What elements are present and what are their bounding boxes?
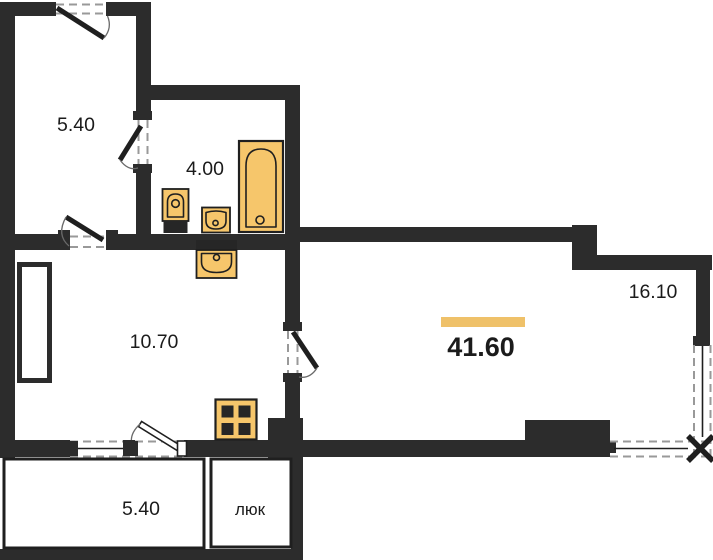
- door-jamb: [106, 230, 118, 250]
- wall-segment: [597, 255, 712, 270]
- wall-segment: [0, 2, 15, 458]
- door-closet-entry: [56, 5, 109, 39]
- door-kitchen-to-living: [288, 331, 317, 377]
- hatch-label: люк: [235, 500, 266, 519]
- cabinet: [20, 265, 50, 381]
- wall-segment: [0, 2, 56, 16]
- window-jamb: [693, 336, 710, 346]
- room-label-balcony: 5.40: [122, 498, 160, 520]
- wall-segment: [696, 270, 710, 338]
- wall-segment: [150, 85, 300, 100]
- door-bathroom: [120, 120, 148, 169]
- floor-plan-canvas: 5.40 4.00 10.70 41.60 16.10 5.40 люк: [0, 0, 713, 560]
- wall-segment: [525, 420, 610, 457]
- kitchen-sink-icon: [196, 240, 237, 278]
- door-jamb: [283, 322, 302, 331]
- wall-segment: [136, 2, 151, 111]
- wall-segment: [285, 227, 572, 242]
- room-label-living: 16.10: [629, 281, 678, 303]
- wall-segment: [291, 457, 303, 551]
- wall-segment: [285, 100, 300, 322]
- door-jamb: [133, 111, 152, 120]
- floor-plan: 5.40 4.00 10.70 41.60 16.10 5.40 люк: [0, 0, 713, 560]
- balcony-outline: [4, 459, 204, 548]
- wall-segment: [268, 418, 303, 458]
- bathtub-icon: [239, 141, 283, 232]
- wall-segment: [300, 440, 525, 457]
- window-corner-x-icon: [688, 436, 713, 461]
- total-area-accent-bar: [441, 317, 525, 327]
- wall-segment: [572, 225, 597, 270]
- toilet-icon: [163, 189, 189, 233]
- total-area-label: 41.60: [447, 332, 515, 362]
- stove-icon: [216, 400, 257, 440]
- wall-segment: [0, 440, 70, 457]
- room-label-kitchen: 10.70: [130, 331, 179, 353]
- room-label-closet: 5.40: [57, 114, 95, 136]
- wall-segment: [136, 173, 151, 234]
- room-label-bathroom: 4.00: [186, 158, 224, 180]
- washbasin-icon: [202, 208, 230, 233]
- wall-segment: [285, 382, 300, 424]
- wall-segment: [0, 549, 303, 560]
- wall-segment: [184, 440, 268, 457]
- window-jamb: [607, 441, 616, 453]
